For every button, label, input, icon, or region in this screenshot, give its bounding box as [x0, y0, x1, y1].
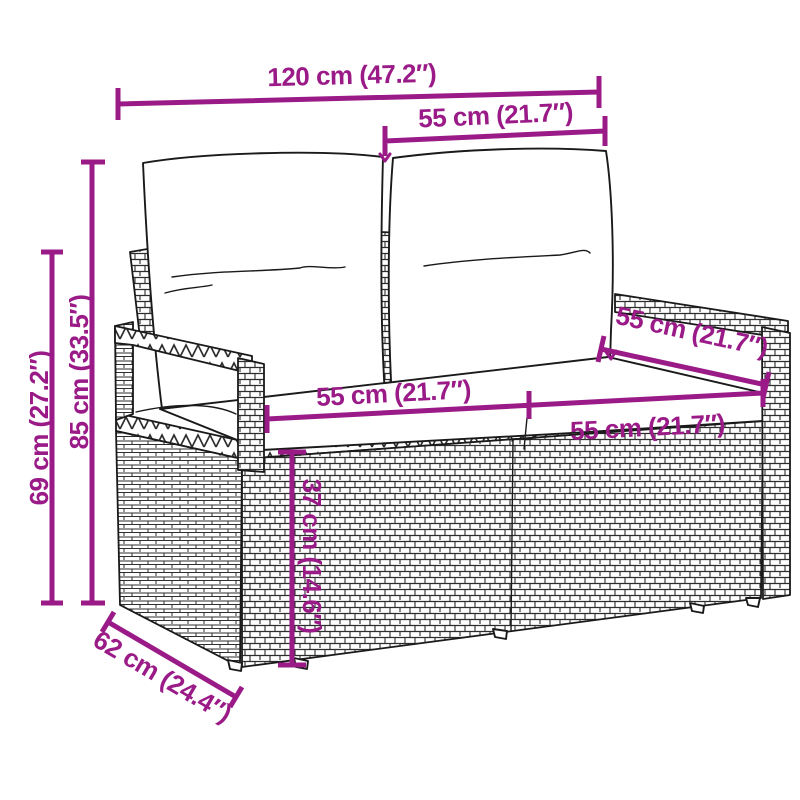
- dimension-total-height: 85 cm (33.5″): [64, 162, 105, 603]
- dimension-total-height-label: 85 cm (33.5″): [64, 295, 94, 450]
- base-side-face: [116, 431, 242, 667]
- dimension-armrest-height-label: 69 cm (27.2″): [24, 351, 54, 506]
- sofa-foot: [746, 598, 760, 607]
- dimension-armrest-height: 69 cm (27.2″): [24, 252, 63, 603]
- dimension-total-width-label: 120 cm (47.2″): [267, 58, 437, 92]
- sofa-foot: [493, 629, 507, 639]
- sofa-foot: [228, 660, 242, 671]
- diagram-canvas: 120 cm (47.2″) 55 cm (21.7″) 85 cm (33.5…: [0, 0, 800, 800]
- product-dimension-diagram: 120 cm (47.2″) 55 cm (21.7″) 85 cm (33.5…: [0, 0, 800, 800]
- armrest-right-post: [762, 327, 790, 599]
- armrest-left-front-post: [238, 358, 264, 472]
- dimension-seat-height-label: 37 cm (14.6″): [297, 479, 327, 634]
- dimension-backrest-section-width-label: 55 cm (21.7″): [418, 97, 574, 134]
